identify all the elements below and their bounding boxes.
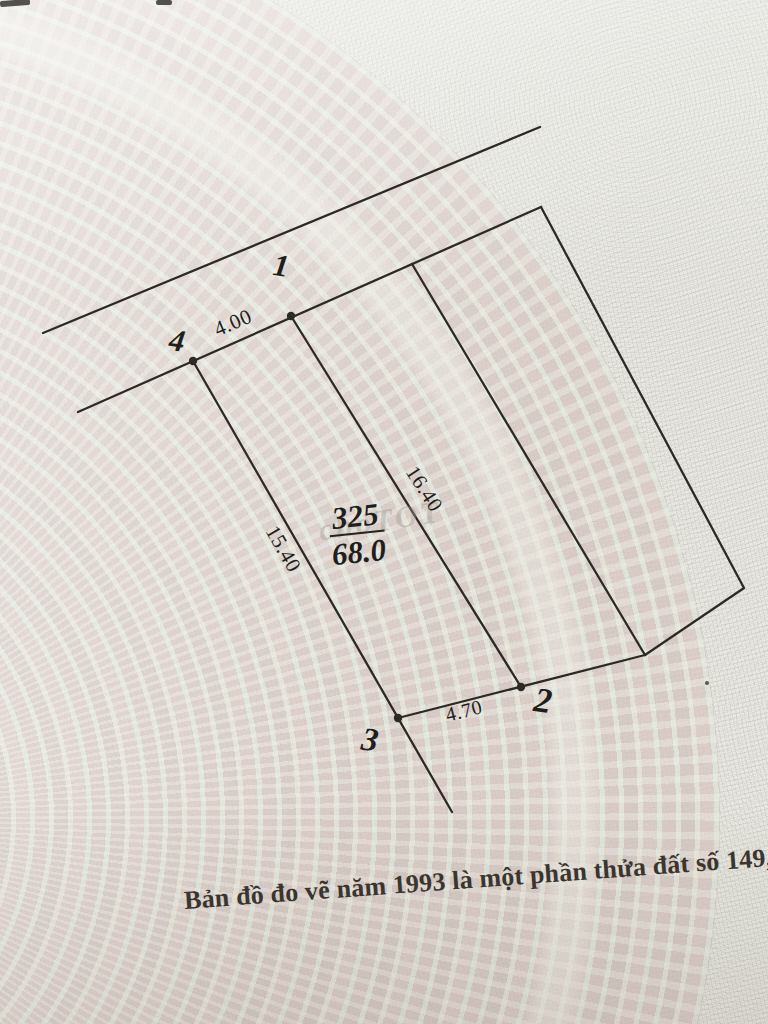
vertex-dot-4 xyxy=(189,357,197,365)
vertex-dot-2 xyxy=(517,683,525,691)
parcel-area: 68.0 xyxy=(330,532,388,571)
parcel-number: 325 xyxy=(326,498,384,538)
road-edge-upper-line xyxy=(43,127,540,333)
adjacent-plot-left-line xyxy=(412,264,645,655)
survey-photo-page: choTOT 1 4 2 3 4.00 16.40 15.40 4.70 325… xyxy=(0,0,768,1024)
cropped-text-speck-mid xyxy=(156,0,172,5)
dust-dot xyxy=(705,681,709,685)
adjacent-plot-right-line xyxy=(541,207,744,655)
road-edge-lower-line xyxy=(78,207,541,412)
vertex-dot-3 xyxy=(394,714,402,722)
parcel-side-4-3-line-extended xyxy=(193,361,452,812)
vertex-dot-1 xyxy=(287,312,295,320)
parcel-number-area-fraction: 325 68.0 xyxy=(326,498,387,570)
